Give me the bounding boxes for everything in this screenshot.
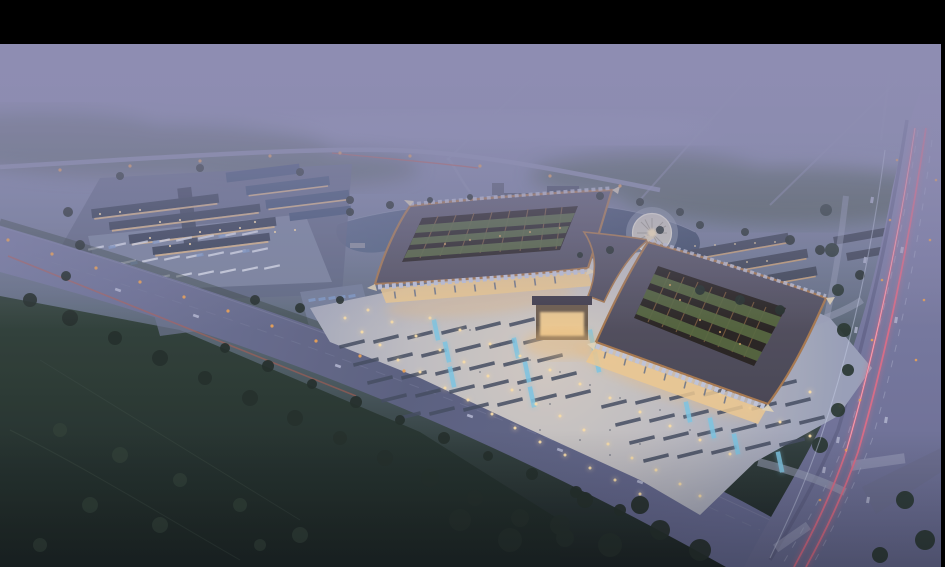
letterbox-top <box>0 0 945 44</box>
letterbox-right <box>941 0 945 567</box>
aerial-dusk-rendering <box>0 0 945 567</box>
bottom-vignette <box>0 430 945 567</box>
rendering-viewport <box>0 0 945 567</box>
